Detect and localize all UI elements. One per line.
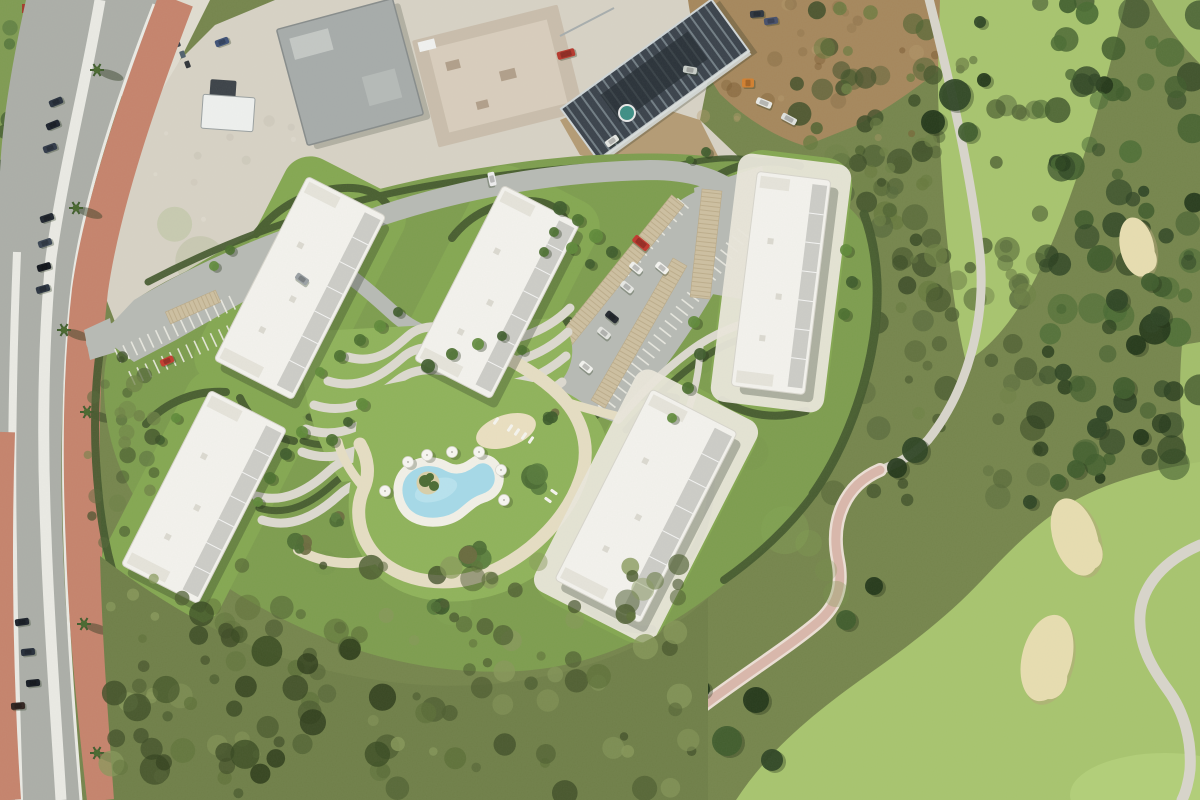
aerial-masterplan-photo [0, 0, 1200, 800]
aerial-scene [0, 0, 1200, 800]
photo-grain [0, 0, 1200, 800]
